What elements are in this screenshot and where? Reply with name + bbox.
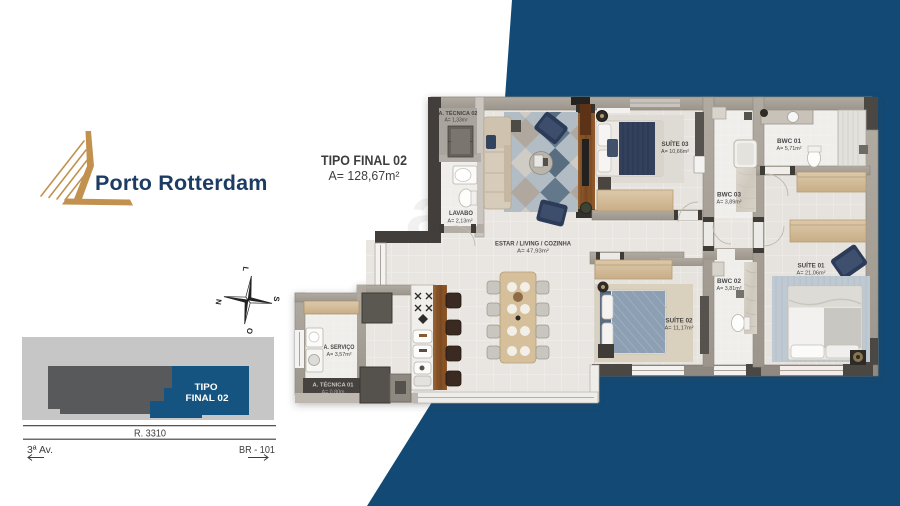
svg-text:A= 10,66m²: A= 10,66m² [661, 149, 689, 155]
svg-text:SUÍTE 01: SUÍTE 01 [798, 262, 826, 270]
svg-text:Porto Rotterdam: Porto Rotterdam [95, 171, 268, 195]
svg-text:LAVABO: LAVABO [449, 210, 473, 217]
svg-text:A= 1,33m²: A= 1,33m² [445, 118, 468, 124]
svg-text:3ª Av.: 3ª Av. [27, 444, 53, 456]
svg-text:A= 11,17m²: A= 11,17m² [665, 326, 694, 332]
svg-text:O: O [245, 327, 255, 334]
svg-text:A= 47,93m²: A= 47,93m² [517, 249, 549, 255]
svg-text:A= 2,13m²: A= 2,13m² [448, 219, 473, 225]
svg-text:BWC 02: BWC 02 [717, 278, 742, 285]
svg-text:SUÍTE 02: SUÍTE 02 [666, 317, 694, 325]
svg-text:A= 128,67m²: A= 128,67m² [329, 169, 400, 183]
svg-text:BWC 01: BWC 01 [777, 138, 802, 145]
svg-text:A. TÉCNICA 01: A. TÉCNICA 01 [313, 381, 354, 389]
svg-text:A. SERVIÇO: A. SERVIÇO [324, 344, 355, 351]
svg-text:A= 5,71m²: A= 5,71m² [777, 146, 802, 152]
svg-text:R. 3310: R. 3310 [134, 428, 166, 440]
svg-text:A= 0,80m: A= 0,80m [322, 390, 345, 396]
svg-text:A= 3,57m²: A= 3,57m² [327, 352, 352, 358]
svg-text:TIPO: TIPO [195, 382, 218, 392]
svg-text:SUÍTE 03: SUÍTE 03 [662, 140, 690, 148]
svg-text:A= 3,81m²: A= 3,81m² [717, 286, 742, 292]
svg-text:BR - 101: BR - 101 [239, 444, 275, 456]
svg-text:A= 3,89m²: A= 3,89m² [717, 200, 742, 206]
svg-text:A. TÉCNICA 02: A. TÉCNICA 02 [439, 109, 478, 117]
svg-text:TIPO FINAL 02: TIPO FINAL 02 [321, 153, 407, 168]
svg-text:ESTAR / LIVING / COZINHA: ESTAR / LIVING / COZINHA [495, 241, 571, 248]
svg-text:FINAL 02: FINAL 02 [186, 393, 229, 403]
svg-text:BWC 03: BWC 03 [717, 192, 742, 199]
svg-text:A= 21,06m²: A= 21,06m² [797, 271, 826, 277]
